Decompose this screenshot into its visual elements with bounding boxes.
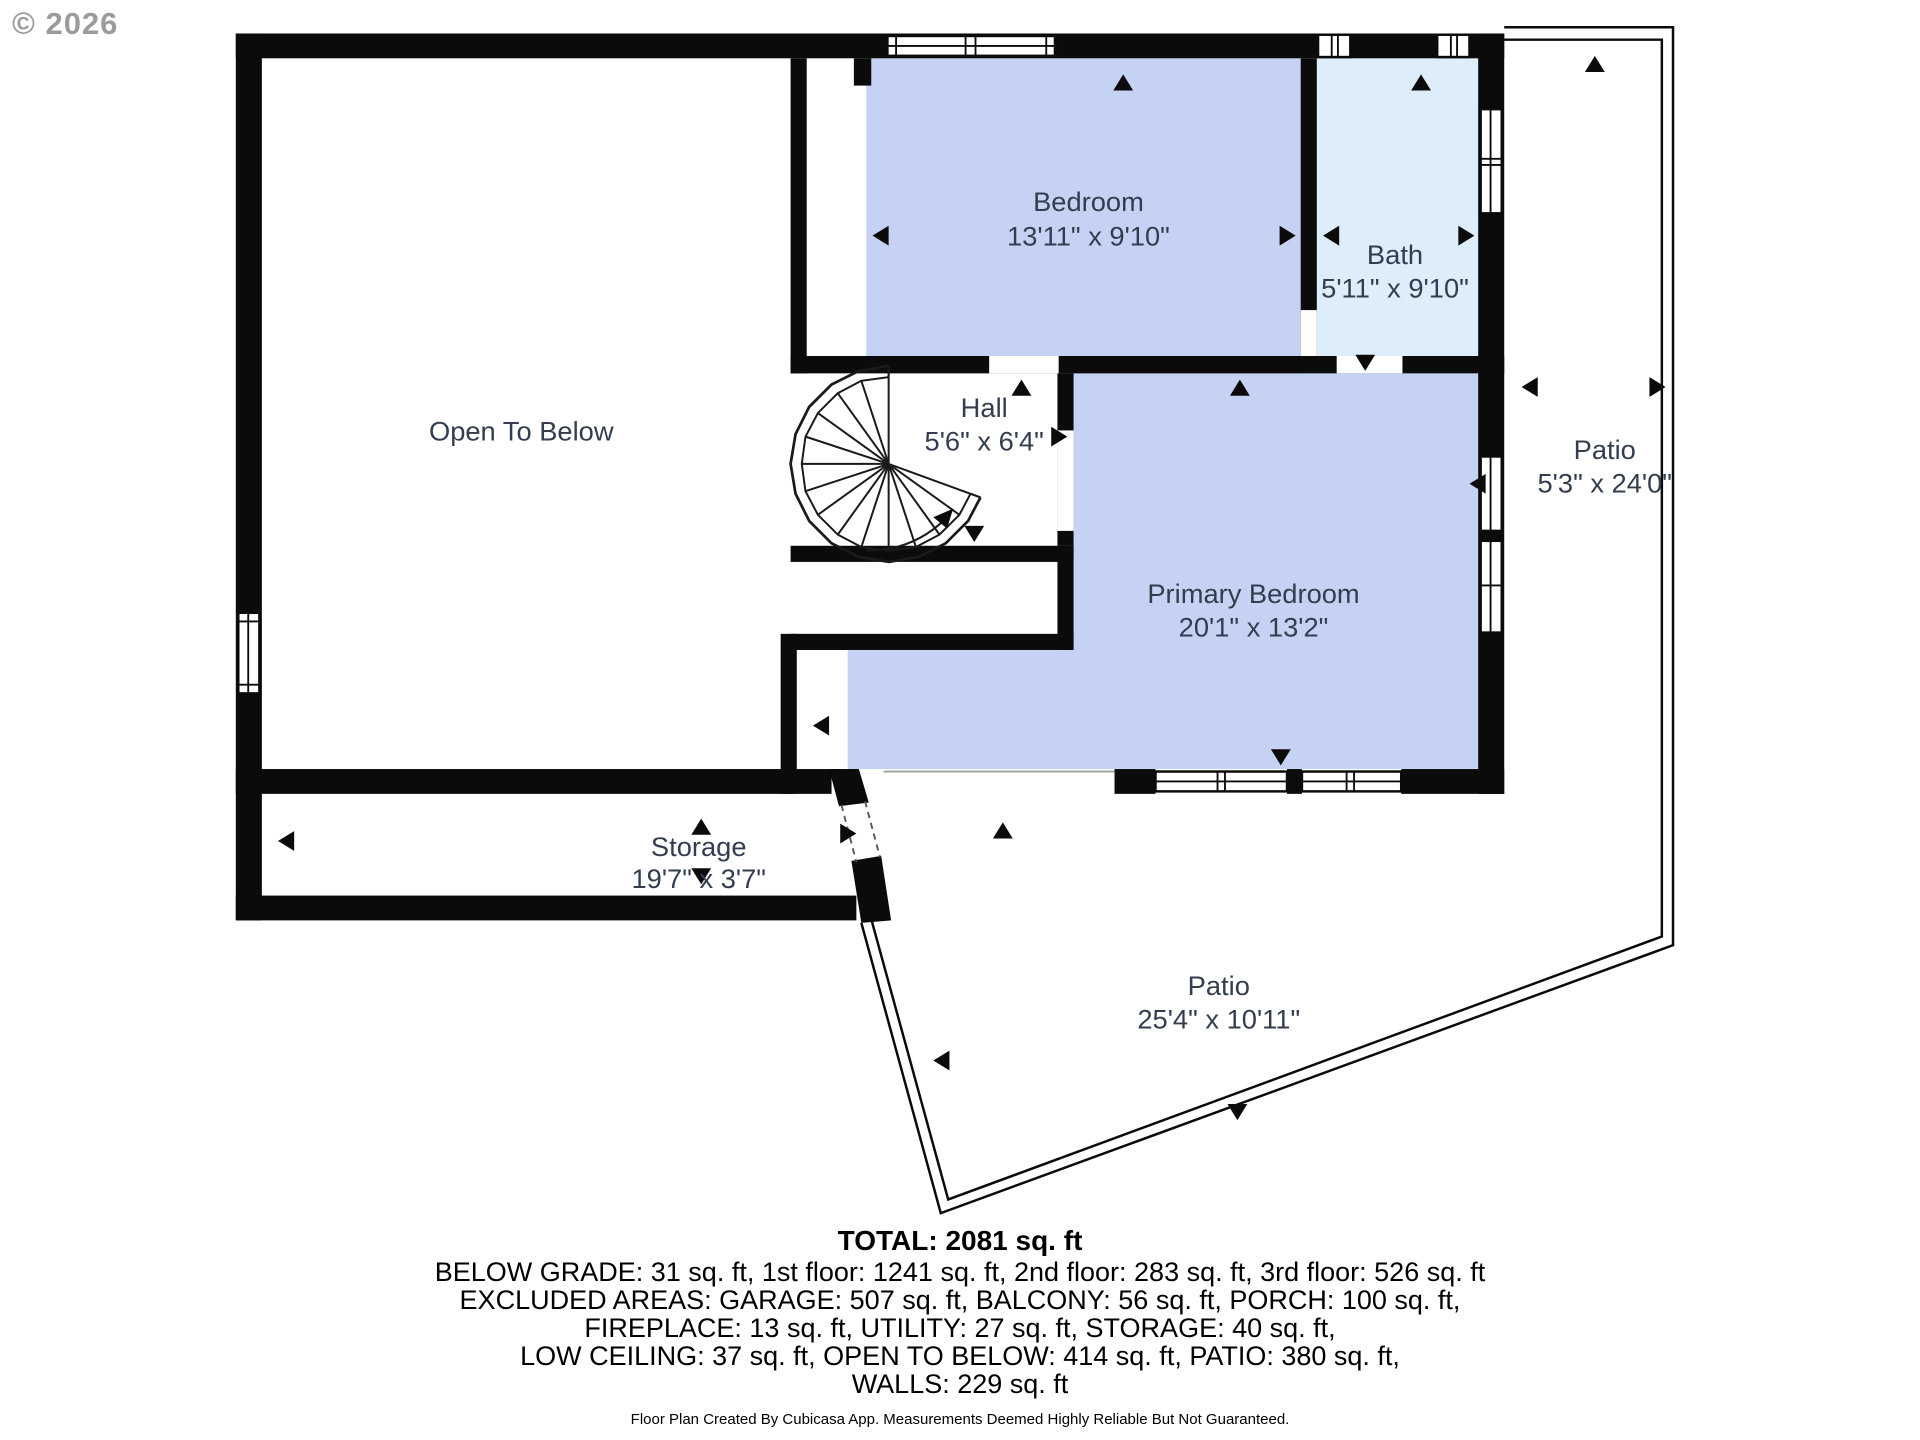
label-storage-dims: 19'7" x 3'7" [632,863,766,894]
wall-primary-bottom-a [1115,769,1156,794]
wall-stub-bedroom-notch [854,58,871,85]
window-bedroom-top [887,36,1055,56]
label-bedroom-name: Bedroom [1033,186,1144,217]
summary-line-lowceiling: LOW CEILING: 37 sq. ft, OPEN TO BELOW: 4… [0,1341,1920,1372]
label-primary-bedroom-name: Primary Bedroom [1147,578,1359,609]
label-patio-right-dims: 5'3" x 24'0" [1538,467,1672,498]
label-hall-dims: 5'6" x 6'4" [925,425,1044,456]
label-primary-bedroom-dims: 20'1" x 13'2" [1179,611,1329,642]
window-bath-top-1 [1318,35,1350,57]
summary-line-walls: WALLS: 229 sq. ft [0,1369,1920,1400]
wall-top [236,33,1504,58]
door-hall-bedroom [989,356,1059,373]
door-bedroom-bath [1301,310,1317,356]
label-bath-dims: 5'11" x 9'10" [1321,273,1469,304]
summary-total: TOTAL: 2081 sq. ft [0,1225,1920,1257]
wall-nook-bottom [791,634,1074,650]
door-hall-primary [1057,430,1073,530]
window-primary-right-2 [1481,541,1502,633]
label-patio-bottom-name: Patio [1188,970,1250,1001]
label-hall-name: Hall [961,392,1008,423]
window-primary-right-1 [1481,456,1502,530]
spiral-staircase [791,366,981,562]
room-bath-fill [1317,58,1478,356]
wall-primary-bottom-b [1287,769,1302,794]
window-bath-right [1481,109,1502,213]
label-patio-bottom-dims: 25'4" x 10'11" [1137,1003,1300,1034]
stair-direction-arrow [933,509,953,529]
label-storage-name: Storage [651,831,747,862]
summary-line-fireplace: FIREPLACE: 13 sq. ft, UTILITY: 27 sq. ft… [0,1313,1920,1344]
wall-storage-bottom [236,896,857,921]
stair-treads [802,366,981,551]
footer-disclaimer: Floor Plan Created By Cubicasa App. Meas… [0,1411,1920,1428]
window-bath-top-2 [1437,35,1469,57]
window-primary-bottom-2 [1302,772,1401,792]
summary-line-excluded: EXCLUDED AREAS: GARAGE: 507 sq. ft, BALC… [0,1285,1920,1316]
window-left-wall [238,613,259,694]
room-fills [848,58,1478,769]
summary-line-floors: BELOW GRADE: 31 sq. ft, 1st floor: 1241 … [0,1257,1920,1288]
label-open-to-below: Open To Below [429,415,614,446]
window-primary-bottom-1 [1155,772,1287,792]
floor-plan: Open To Below Bedroom 13'11" x 9'10" Bat… [0,0,1920,1228]
door-patio-sliding [884,769,1115,794]
wall-storage-slant-top [829,769,869,806]
label-bedroom-dims: 13'11" x 9'10" [1007,221,1170,252]
wall-otb-bottom [236,769,832,794]
wall-nook-top [791,546,1074,562]
wall-storage-slant-bottom [851,856,891,923]
label-bath-name: Bath [1367,239,1423,270]
wall-bedroom-left [791,58,807,373]
wall-primary-bottom-c [1401,769,1504,794]
copyright-stamp: © 2026 [12,6,118,42]
label-patio-right-name: Patio [1574,434,1636,465]
